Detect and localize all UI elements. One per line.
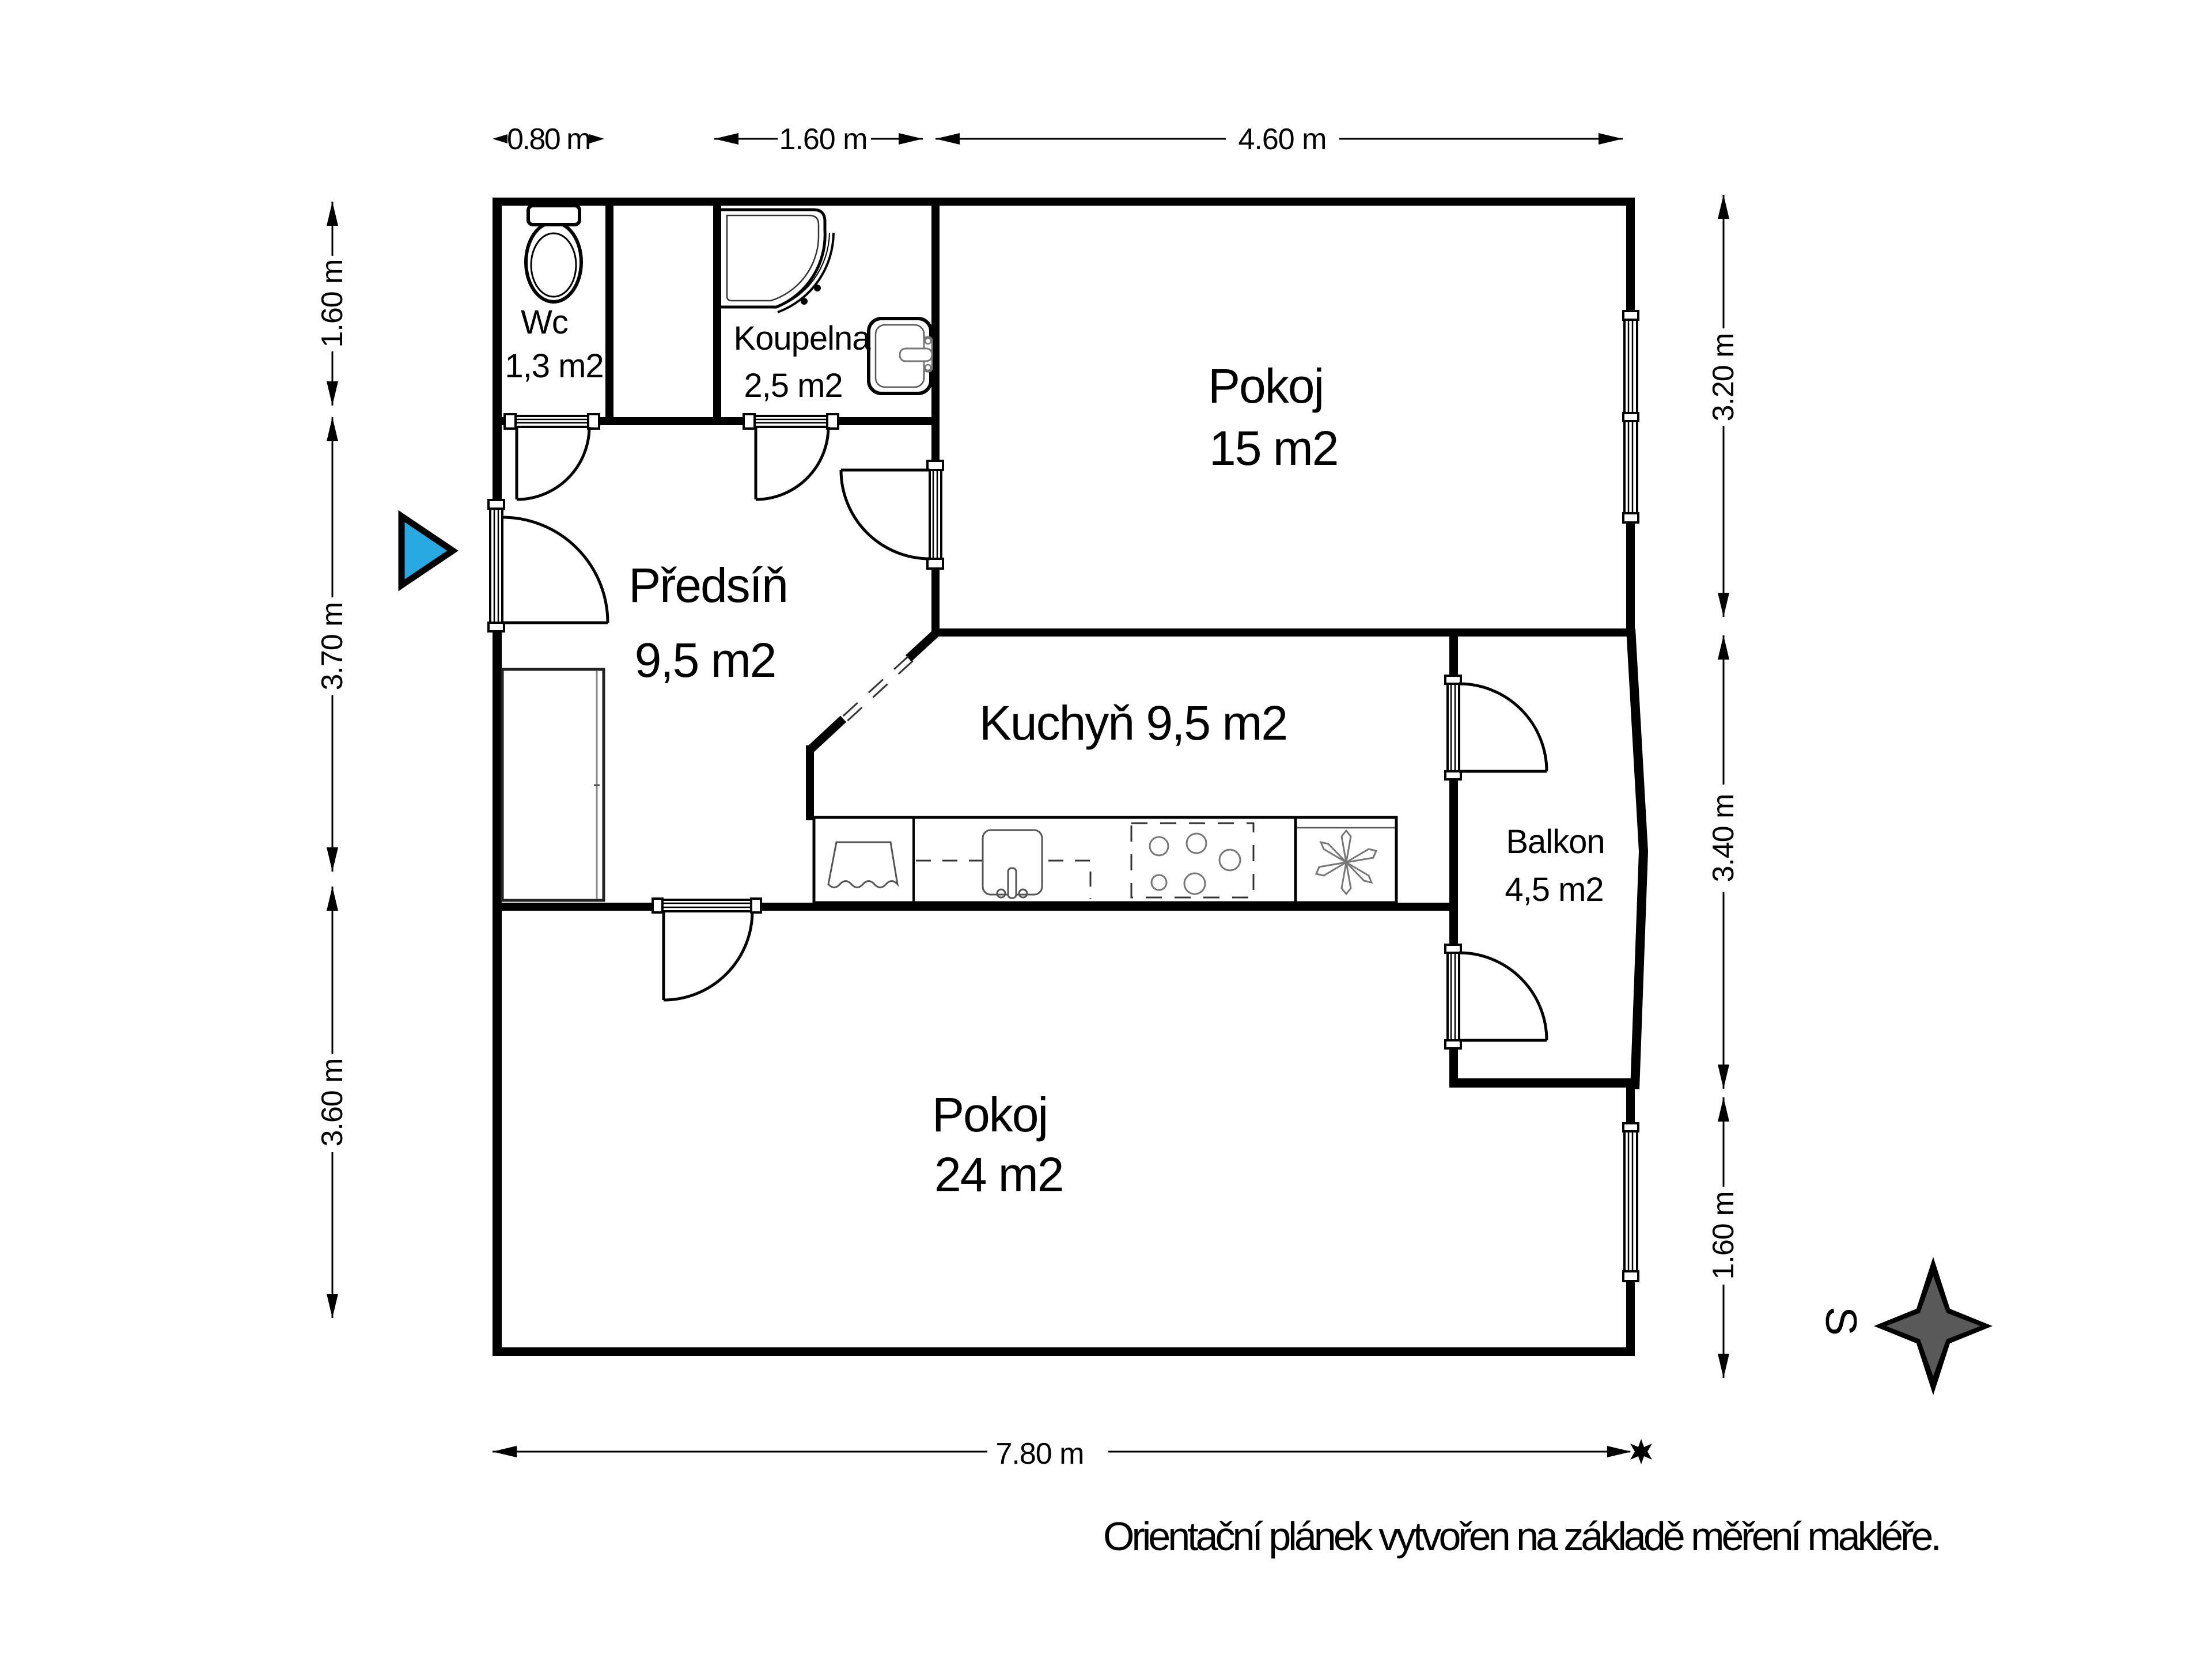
svg-text:1.60 m: 1.60 m [316, 260, 349, 348]
svg-text:24 m2: 24 m2 [934, 1147, 1063, 1202]
svg-text:4,5 m2: 4,5 m2 [1505, 871, 1603, 908]
svg-text:3.20 m: 3.20 m [1707, 334, 1740, 422]
svg-text:7.80 m: 7.80 m [996, 1437, 1084, 1471]
svg-text:2,5 m2: 2,5 m2 [744, 367, 842, 404]
svg-text:1.60 m: 1.60 m [779, 123, 868, 156]
svg-text:Kuchyň 9,5 m2: Kuchyň 9,5 m2 [979, 696, 1287, 750]
svg-text:3.40 m: 3.40 m [1707, 794, 1740, 882]
svg-text:Wc: Wc [521, 304, 568, 341]
svg-text:S: S [1816, 1306, 1865, 1336]
svg-text:1,3 m2: 1,3 m2 [505, 347, 603, 385]
svg-text:Koupelna: Koupelna [733, 320, 871, 357]
svg-text:3.70 m: 3.70 m [316, 603, 349, 691]
svg-text:Balkon: Balkon [1506, 823, 1604, 861]
svg-text:Orientační plánek vytvořen na: Orientační plánek vytvořen na základě mě… [1103, 1514, 1939, 1559]
svg-text:Pokoj: Pokoj [932, 1088, 1047, 1142]
svg-text:Pokoj: Pokoj [1208, 359, 1323, 413]
svg-text:9,5 m2: 9,5 m2 [635, 633, 776, 687]
svg-text:15 m2: 15 m2 [1209, 421, 1338, 475]
svg-text:1.60 m: 1.60 m [1707, 1192, 1740, 1280]
svg-text:Předsíň: Předsíň [628, 558, 787, 612]
svg-text:4.60 m: 4.60 m [1238, 123, 1327, 156]
svg-text:3.60 m: 3.60 m [316, 1059, 349, 1147]
svg-text:0.80 m: 0.80 m [507, 123, 590, 156]
